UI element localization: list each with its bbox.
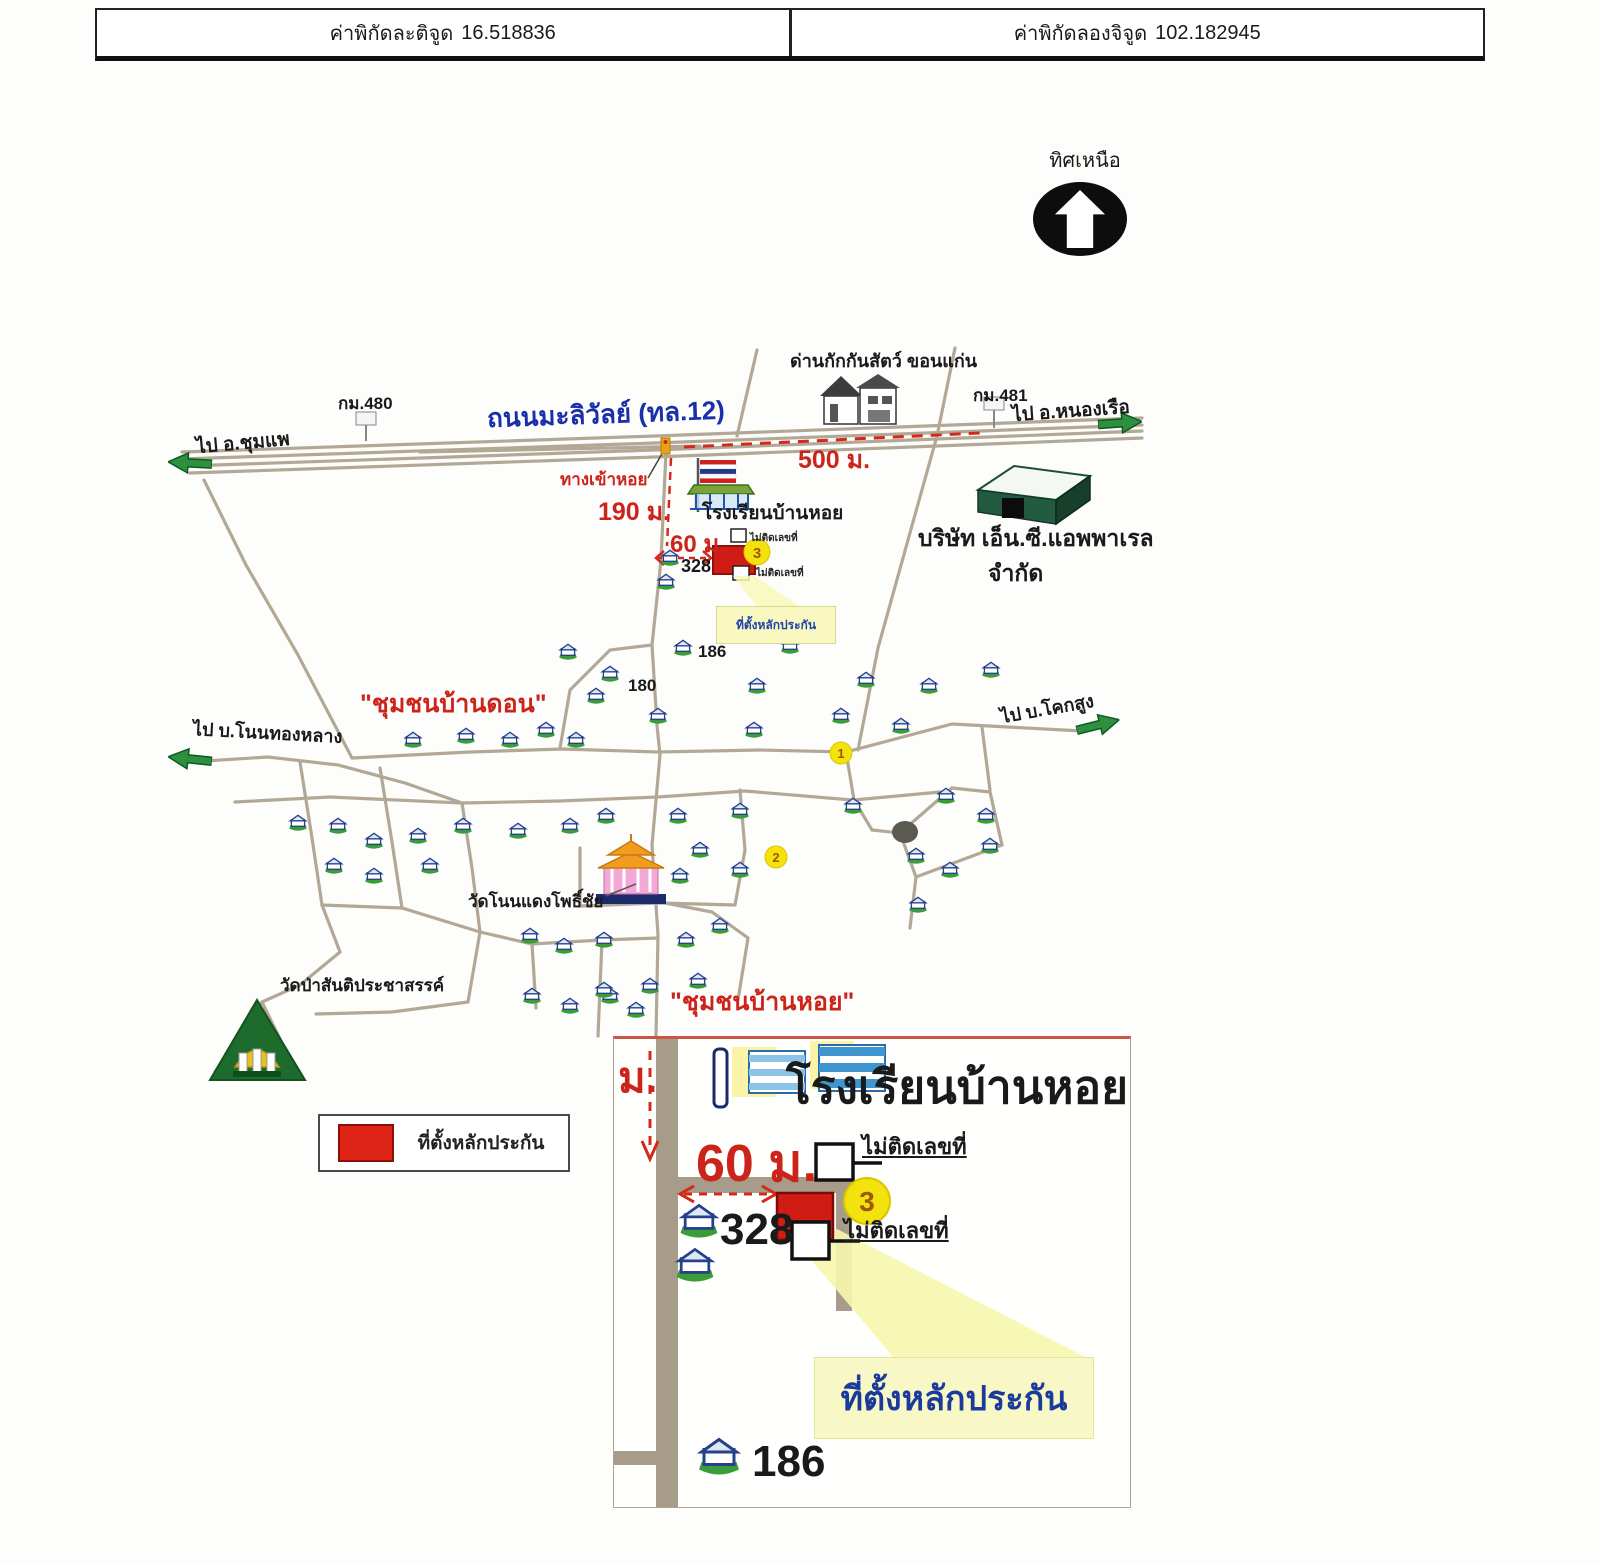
house-icon <box>601 666 619 681</box>
house-icon <box>674 640 692 655</box>
house-186-label: 186 <box>698 642 726 662</box>
temple-2-icon <box>210 1000 305 1080</box>
house-icon <box>457 728 475 743</box>
house-icon <box>649 708 667 723</box>
temple-1-label: วัดโนนแดงโพธิ์ชัย <box>468 888 603 915</box>
detail-inset: 3 ม. โรงเรียนบ้านหอย 60 ม. ไม่ติดเลขที่ … <box>613 1036 1131 1508</box>
legend: ที่ตั้งหลักประกัน <box>318 1114 570 1172</box>
company-name-line1: บริษัท เอ็น.ซี.แอพพาเรล <box>918 521 1154 557</box>
house-icon <box>325 858 343 873</box>
main-road-name: ถนนมะลิวัลย์ (ทล.12) <box>486 390 725 439</box>
road-segment <box>235 791 852 803</box>
road-segment <box>322 905 340 952</box>
house-icon <box>365 833 383 848</box>
road-segment <box>854 792 940 800</box>
inset-distance-60m-label: 60 ม. <box>696 1121 817 1204</box>
road-segment <box>737 350 757 436</box>
road-segment <box>380 768 402 908</box>
site-callout-mini: ที่ตั้งหลักประกัน <box>716 606 836 644</box>
road-segment <box>660 902 748 938</box>
house-icon <box>677 1249 714 1281</box>
house-icon <box>977 808 995 823</box>
house-icon <box>567 732 585 747</box>
inset-site-callout: ที่ตั้งหลักประกัน <box>814 1357 1094 1439</box>
inset-no-number-top: ไม่ติดเลขที่ <box>862 1129 967 1164</box>
distance-500m-label: 500 ม. <box>798 440 870 480</box>
house-icon <box>289 815 307 830</box>
house-icon <box>677 932 695 947</box>
house-icon <box>982 662 1000 677</box>
house-icon <box>597 808 615 823</box>
north-label: ทิศเหนือ <box>1020 144 1150 176</box>
company-name-line2: จำกัด <box>988 556 1043 592</box>
temple-2-label: วัดป่าสันติประชาสรรค์ <box>280 972 444 999</box>
house-icon <box>421 858 439 873</box>
map-document-page: ค่าพิกัดละติจูด 16.518836 ค่าพิกัดลองจิจ… <box>0 0 1600 1564</box>
arrow-southwest-icon <box>167 747 213 771</box>
no-number-label-1: ไม่ติดเลขที่ <box>750 531 798 546</box>
house-icon <box>832 708 850 723</box>
house-icon <box>920 678 938 693</box>
road-segment <box>982 727 990 790</box>
callout-beam <box>733 576 802 610</box>
house-icon <box>587 688 605 703</box>
house-icon <box>521 928 539 943</box>
inset-unnumbered-square-2 <box>792 1222 829 1259</box>
house-icon <box>981 838 999 853</box>
house-icon <box>669 808 687 823</box>
inset-house-328-label: 328 <box>720 1205 793 1255</box>
house-icon <box>699 1440 739 1475</box>
house-icon <box>731 803 749 818</box>
legend-collateral-swatch <box>338 1124 394 1162</box>
house-icon <box>537 722 555 737</box>
traffic-signal-icon <box>661 438 670 454</box>
point-1-number: 1 <box>837 746 844 761</box>
inset-no-number-bottom: ไม่ติดเลขที่ <box>844 1213 949 1248</box>
pond <box>892 821 918 843</box>
quarantine-label: ด่านกักกันสัตว์ ขอนแก่น <box>790 346 977 375</box>
road-segment <box>652 452 666 1036</box>
house-icon <box>681 1205 718 1237</box>
village-houses <box>289 550 1000 1017</box>
house-icon <box>454 818 472 833</box>
entrance-label: ทางเข้าหอย <box>560 466 647 493</box>
quarantine-building-icon <box>820 374 900 424</box>
house-icon <box>748 678 766 693</box>
inset-road-vertical <box>656 1039 678 1507</box>
temple-1-icon <box>596 834 666 904</box>
house-icon <box>745 722 763 737</box>
no-number-label-2: ไม่ติดเลขที่ <box>756 566 804 581</box>
house-icon <box>627 1002 645 1017</box>
inset-flagpole-icon <box>714 1049 727 1107</box>
road-segment <box>300 762 322 905</box>
road-segment <box>468 932 480 1002</box>
unnumbered-house-square-1 <box>731 529 746 542</box>
point-2-number: 2 <box>772 850 779 865</box>
distance-190m-label: 190 ม. <box>598 492 670 532</box>
road-segment <box>352 749 658 758</box>
inset-school-label: โรงเรียนบ้านหอย <box>786 1051 1128 1124</box>
road-segment <box>560 645 652 748</box>
house-icon <box>509 823 527 838</box>
house-icon <box>409 828 427 843</box>
road-segment <box>858 436 937 750</box>
km480-label: กม.480 <box>338 390 393 417</box>
house-icon <box>671 868 689 883</box>
community-hoi-label: "ชุมชนบ้านหอย" <box>670 982 854 1022</box>
house-icon <box>365 868 383 883</box>
community-don-label: "ชุมชนบ้านดอน" <box>360 684 547 724</box>
house-icon <box>561 818 579 833</box>
house-icon <box>595 982 613 997</box>
house-icon <box>559 644 577 659</box>
house-icon <box>501 732 519 747</box>
house-icon <box>404 732 422 747</box>
inset-unnumbered-square-1 <box>816 1144 853 1180</box>
house-180-label: 180 <box>628 676 656 696</box>
road-segment <box>316 1002 468 1014</box>
point-3-number: 3 <box>753 545 761 562</box>
house-icon <box>691 842 709 857</box>
house-icon <box>561 998 579 1013</box>
legend-site-label: ที่ตั้งหลักประกัน <box>394 1128 568 1158</box>
road-segment <box>952 788 1002 845</box>
house-icon <box>907 848 925 863</box>
road-segment <box>322 905 480 932</box>
warehouse-icon <box>978 466 1090 524</box>
inset-house-186-label: 186 <box>752 1437 825 1487</box>
house-icon <box>523 988 541 1003</box>
inset-distance-m-partial: ม. <box>618 1045 657 1111</box>
house-icon <box>731 862 749 877</box>
inset-road-stub <box>614 1451 658 1465</box>
house-icon <box>595 932 613 947</box>
house-icon <box>329 818 347 833</box>
house-icon <box>892 718 910 733</box>
house-icon <box>941 862 959 877</box>
house-328-label: 328 <box>681 556 711 577</box>
